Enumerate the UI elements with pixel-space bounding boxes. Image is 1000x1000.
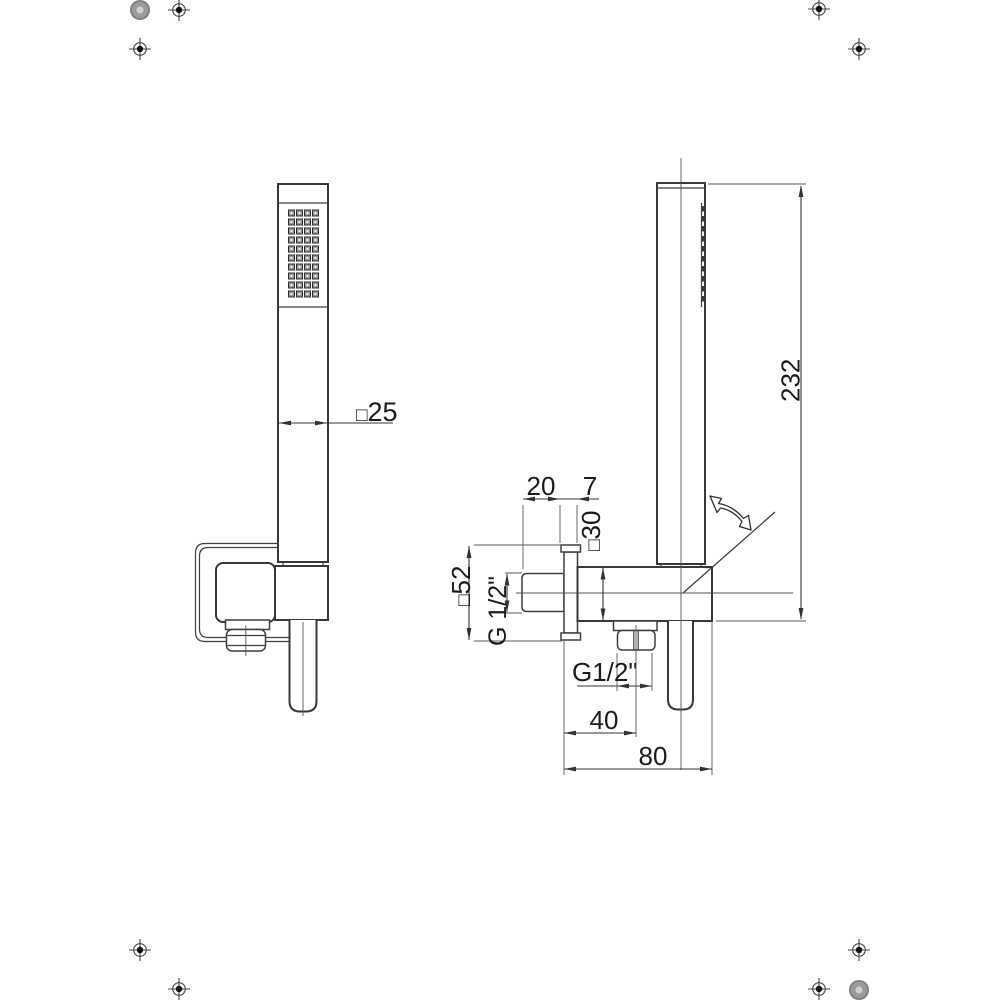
inlet-pipe-side (522, 574, 564, 612)
dim-arrow-icon (564, 767, 576, 772)
registration-mark-icon (168, 978, 190, 1000)
nozzle-center (291, 239, 293, 241)
registration-mark-icon (129, 939, 151, 961)
dim-arrow-icon (640, 684, 652, 689)
dim-label-holder-depth: 80 (639, 741, 668, 771)
front-view: □25 (196, 184, 398, 716)
dim-label-protrusion: 20 (527, 471, 556, 501)
dimension-hose-thread: G1/2" (572, 653, 652, 691)
dim-label-plate-size: □52 (446, 566, 476, 606)
nozzle-center (307, 221, 309, 223)
wall-plate-cap (561, 633, 581, 640)
nozzle-center (291, 266, 293, 268)
nozzle-center (315, 275, 317, 277)
dim-label-shower-length: 232 (776, 359, 806, 402)
holder-block-side (578, 567, 713, 621)
technical-drawing: □25 (0, 0, 1000, 1000)
hose-side (668, 621, 693, 710)
nozzle-center (315, 239, 317, 241)
swivel-arrow-icon (710, 496, 751, 530)
nozzle-center (307, 284, 309, 286)
dim-label-handle-width: □25 (356, 397, 398, 427)
nozzle-center (291, 293, 293, 295)
dimension-shower-length: 232 (708, 184, 806, 621)
dim-label-hose-thread: G1/2" (572, 657, 638, 687)
drawing-page: □25 (0, 0, 1000, 1000)
dim-label-outlet-offset: 40 (590, 705, 619, 735)
registration-marks (129, 0, 870, 1000)
dim-arrow-icon (799, 185, 804, 197)
nozzle-center (299, 275, 301, 277)
wall-escutcheon-front (216, 563, 275, 622)
nozzle-center (299, 257, 301, 259)
nozzle-center (315, 248, 317, 250)
nozzle-center (307, 266, 309, 268)
nozzle-center (291, 221, 293, 223)
registration-mark-icon (808, 978, 830, 1000)
side-view: 232 20 7 □30 □52 (446, 158, 806, 775)
nozzle-center (291, 257, 293, 259)
registration-mark-icon (848, 38, 870, 60)
dim-label-inlet-thread: G 1/2" (484, 576, 512, 646)
nozzle-center (291, 284, 293, 286)
nozzle-center (307, 275, 309, 277)
nozzle-center (307, 239, 309, 241)
wall-plate-side (564, 552, 578, 633)
outlet-step-side (614, 621, 658, 631)
nozzle-center (299, 239, 301, 241)
nozzle-center (315, 293, 317, 295)
halftone-dot-icon (849, 980, 869, 1000)
nozzle-center (315, 266, 317, 268)
dim-arrow-icon (564, 731, 576, 736)
nozzle-center (307, 257, 309, 259)
nozzle-center (299, 293, 301, 295)
dimension-inlet-thread: G 1/2" (484, 573, 522, 646)
dim-arrow-icon (467, 628, 472, 640)
nozzle-center (299, 230, 301, 232)
nozzle-center (291, 230, 293, 232)
dim-arrow-icon (467, 546, 472, 558)
nozzle-center (299, 284, 301, 286)
nozzle-center (315, 284, 317, 286)
nozzle-center (307, 248, 309, 250)
nozzle-center (315, 221, 317, 223)
outlet-step-front (226, 620, 270, 630)
registration-mark-icon (129, 38, 151, 60)
nozzle-center (315, 230, 317, 232)
wall-plate-cap (561, 545, 581, 552)
registration-mark-icon (848, 939, 870, 961)
nozzle-center (299, 212, 301, 214)
dim-arrow-icon (700, 767, 712, 772)
nozzle-center (299, 266, 301, 268)
nozzle-center (315, 257, 317, 259)
nozzle-center (291, 275, 293, 277)
nozzle-center (307, 212, 309, 214)
nozzle-center (291, 248, 293, 250)
nozzle-center (299, 221, 301, 223)
registration-mark-icon (168, 0, 190, 21)
nozzle-center (299, 248, 301, 250)
holder-block-front (275, 566, 328, 620)
nozzle-center (307, 230, 309, 232)
nozzle-center (291, 212, 293, 214)
dim-label-plate-thickness: 7 (583, 471, 597, 501)
nozzle-center (307, 293, 309, 295)
registration-mark-icon (808, 0, 830, 20)
nozzle-center (315, 212, 317, 214)
halftone-dot-icon (130, 0, 150, 20)
dim-arrow-icon (624, 731, 636, 736)
dim-arrow-icon (799, 608, 804, 620)
